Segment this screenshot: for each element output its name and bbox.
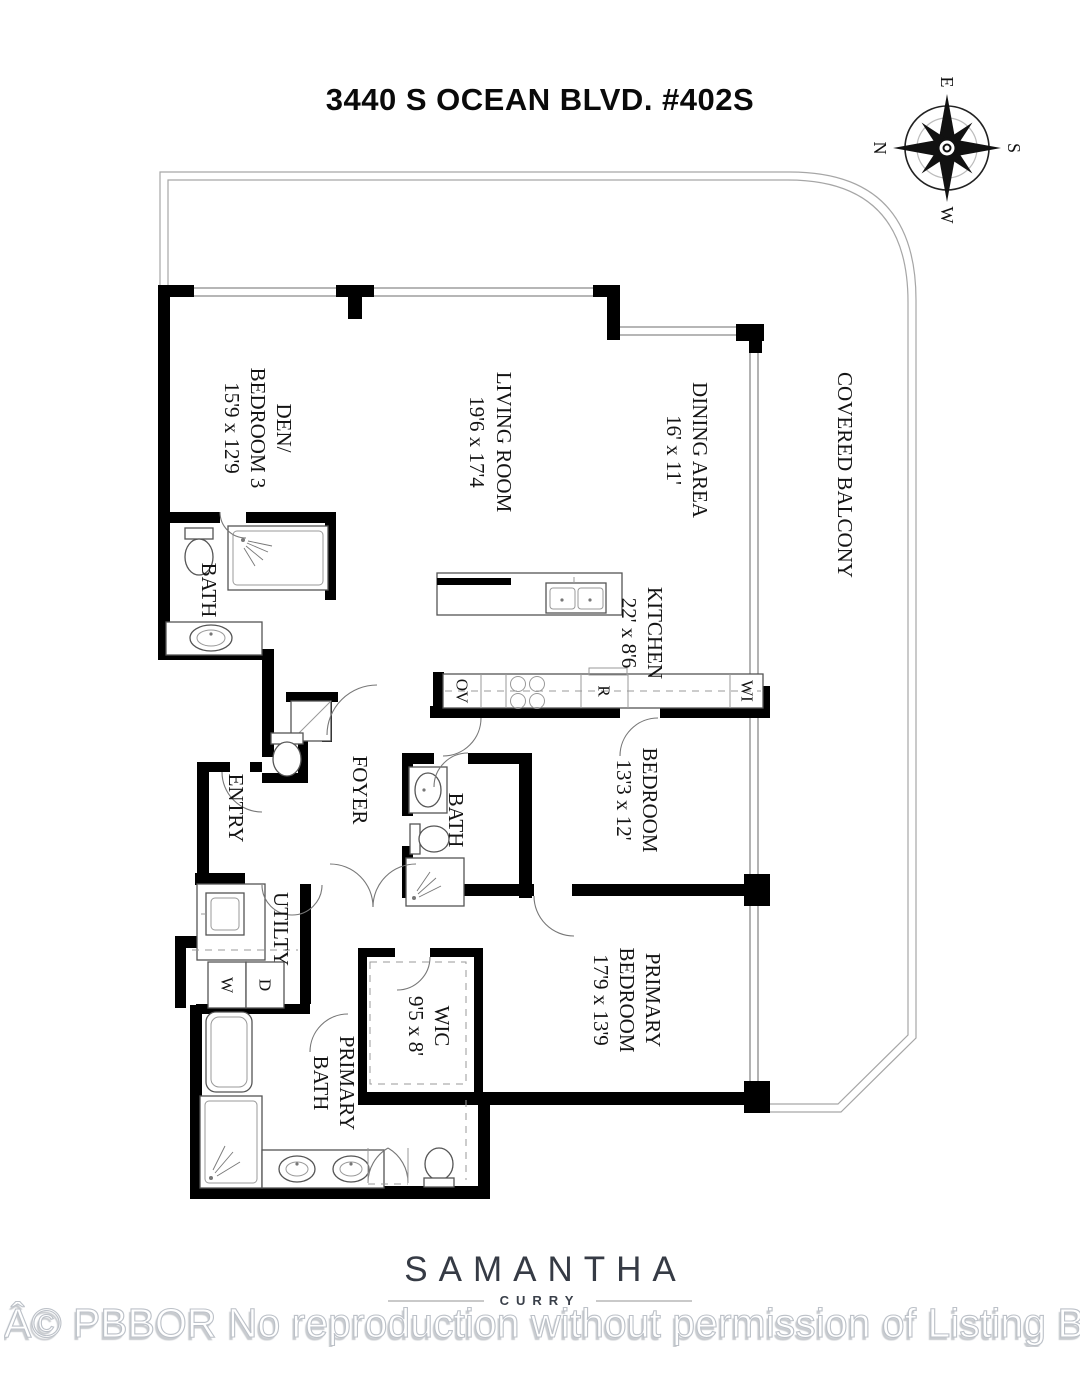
floorplan-page: 3440 S OCEAN BLVD. #402S E S W N [0, 0, 1080, 1398]
kitchen-dims: 22' x 8'6 [617, 598, 641, 669]
primary-bedroom-label: PRIMARY [641, 953, 665, 1048]
primary-bedroom-dims: 17'9 x 13'9 [589, 954, 613, 1046]
bedroom2-label: BEDROOM [638, 747, 662, 852]
bath1-label: BATH [197, 563, 221, 618]
kitchen-island [437, 573, 622, 615]
entry-label: ENTRY [224, 774, 248, 843]
dining-area-label: DINING AREA [688, 382, 712, 519]
wic-dims: 9'5 x 8' [404, 996, 428, 1056]
toilet-icon [424, 1148, 454, 1187]
fridge-label: R [595, 685, 614, 697]
compass-n-label: N [870, 142, 890, 155]
shower-icon [200, 1096, 262, 1188]
vanity-sink-icon [409, 767, 447, 813]
wic-label: WIC [430, 1006, 454, 1047]
bedroom2-dims: 13'3 x 12' [612, 759, 636, 840]
bath2-label: BATH [444, 793, 468, 848]
shower-icon [406, 858, 464, 906]
living-room-label: LIVING ROOM [492, 372, 516, 513]
oven-label: OV [453, 679, 472, 704]
compass-s-label: S [1004, 143, 1024, 153]
dining-area-dims: 16' x 11' [662, 415, 686, 485]
compass-e-label: E [937, 77, 957, 88]
utility-label: UTILTY [269, 892, 293, 966]
floorplan-drawing: E S W N [0, 0, 1080, 1398]
compass-w-label: W [937, 207, 957, 224]
utility-sink-icon [201, 893, 244, 935]
den-dims: 15'9 x 12'9 [220, 382, 244, 474]
powder-toilet-icon [271, 733, 303, 776]
compass-rose: E S W N [870, 77, 1024, 224]
logo-first-name: SAMANTHA [0, 1250, 1080, 1290]
double-vanity-icon [262, 1150, 384, 1188]
den-label: DEN/ [272, 404, 296, 453]
shower-icon [228, 526, 328, 590]
primary-bath-label: PRIMARY [335, 1036, 359, 1131]
bath1-fixtures [166, 526, 328, 655]
den-label-2: BEDROOM 3 [246, 368, 270, 489]
island-sink-icon [546, 577, 606, 613]
toilet-icon [410, 824, 449, 854]
kitchen-label: KITCHEN [643, 587, 667, 679]
vanity-sink-icon [166, 622, 262, 655]
dryer-label: D [256, 979, 275, 991]
wine-label: WI [738, 680, 757, 702]
bathtub-icon [206, 1012, 252, 1092]
copyright-watermark: Â© PBBOR No reproduction without permiss… [4, 1300, 1080, 1347]
foyer-label: FOYER [348, 756, 372, 825]
primary-bath-label-2: BATH [309, 1056, 333, 1111]
living-room-dims: 19'6 x 17'4 [465, 396, 489, 488]
primary-bedroom-label-2: BEDROOM [615, 947, 639, 1052]
washer-label: W [218, 977, 237, 994]
covered-balcony-label: COVERED BALCONY [833, 372, 857, 578]
